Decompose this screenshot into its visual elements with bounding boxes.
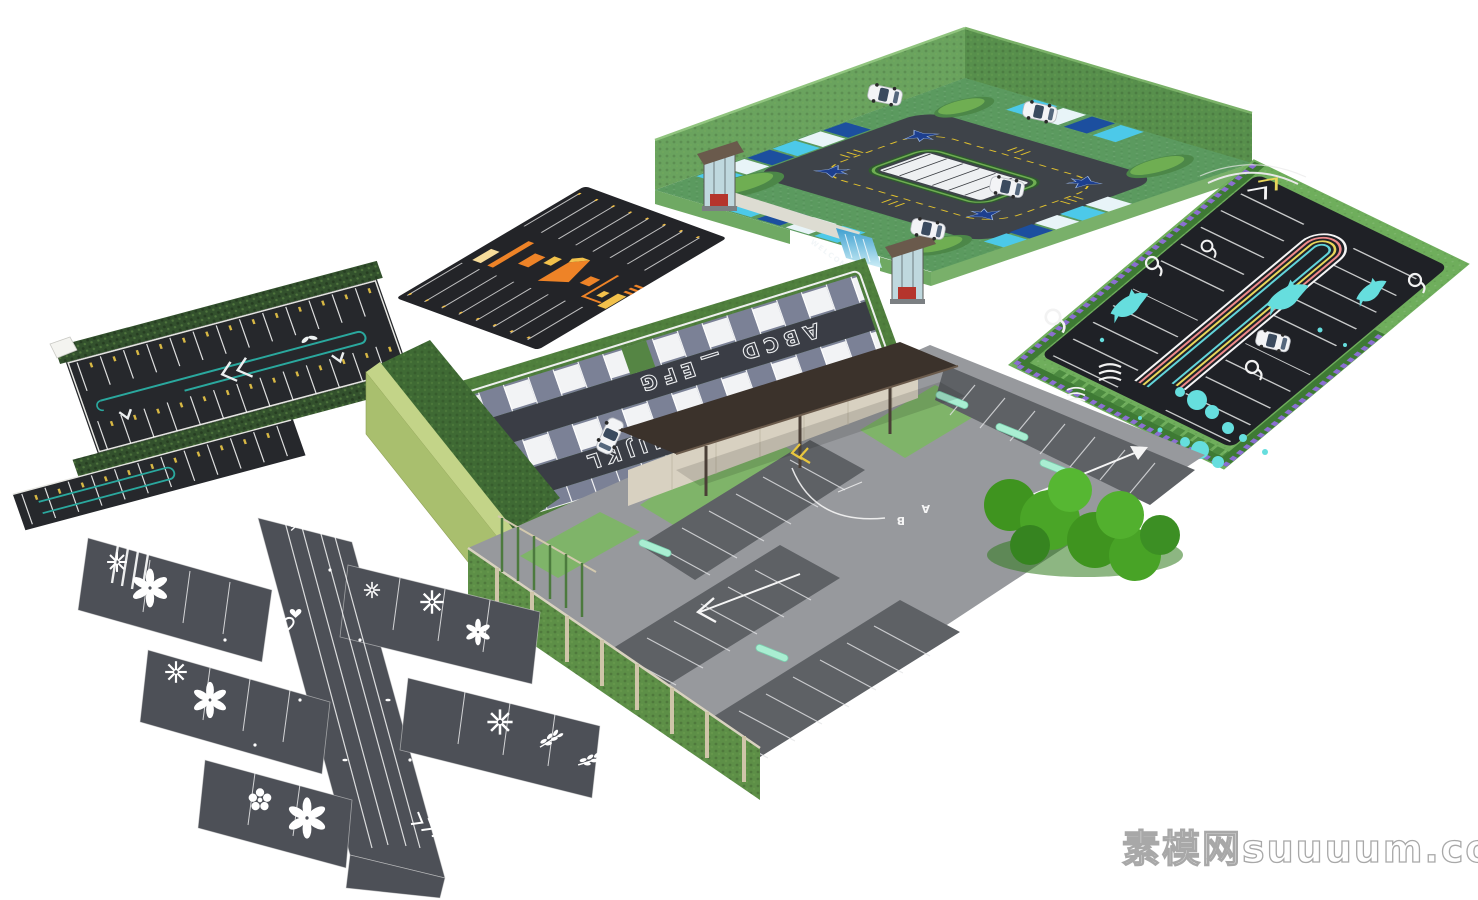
watermark-text: 素模网suuuum.com <box>1122 827 1478 871</box>
wing <box>78 538 272 662</box>
watermark: 素模网suuuum.com <box>1122 818 1478 873</box>
model-showcase-canvas: WELCOME <box>0 0 1478 900</box>
lane-letter-b: B <box>897 514 905 527</box>
wing <box>400 678 600 798</box>
lane-letter-a: A <box>921 502 930 515</box>
